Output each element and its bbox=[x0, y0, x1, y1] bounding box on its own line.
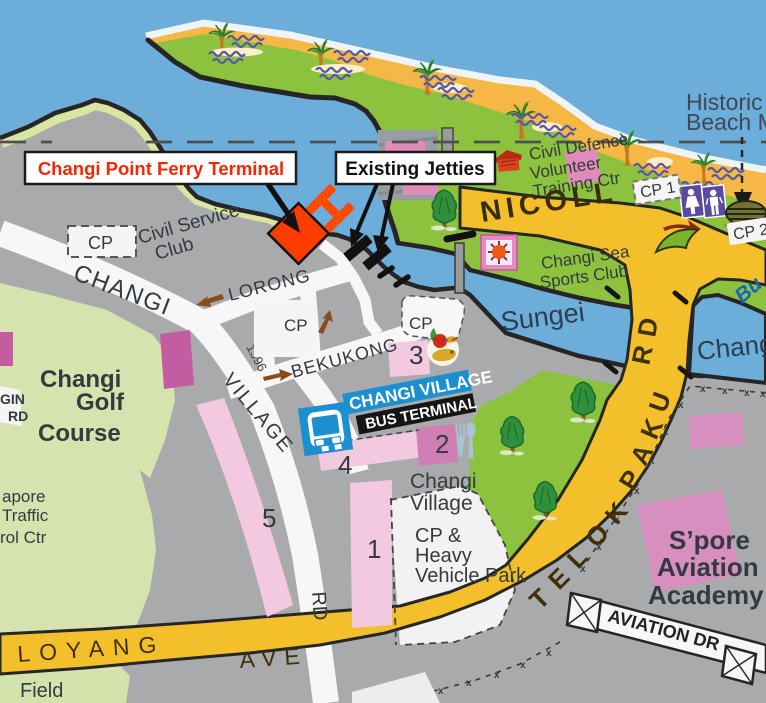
svg-text:CP: CP bbox=[409, 314, 433, 333]
svg-text:S’pore: S’pore bbox=[669, 525, 750, 555]
svg-text:Traffic: Traffic bbox=[2, 506, 49, 525]
svg-text:AVE: AVE bbox=[239, 642, 309, 673]
svg-text:4: 4 bbox=[338, 450, 352, 480]
svg-text:apore: apore bbox=[2, 487, 45, 506]
svg-text:x: x bbox=[546, 648, 552, 659]
svg-text:2: 2 bbox=[435, 429, 449, 459]
svg-text:Vehicle Park: Vehicle Park bbox=[415, 565, 527, 587]
svg-text:Changi: Changi bbox=[410, 470, 477, 493]
svg-text:1: 1 bbox=[367, 534, 381, 564]
svg-text:Course: Course bbox=[38, 420, 121, 447]
svg-text:CP &: CP & bbox=[415, 525, 462, 547]
svg-text:Field: Field bbox=[20, 680, 63, 702]
svg-text:Existing Jetties: Existing Jetties bbox=[345, 159, 484, 180]
svg-text:CP: CP bbox=[88, 233, 113, 253]
svg-text:x: x bbox=[494, 670, 500, 681]
svg-text:Golf: Golf bbox=[76, 389, 125, 416]
svg-text:x: x bbox=[678, 400, 684, 411]
svg-text:x: x bbox=[722, 386, 728, 397]
svg-text:x: x bbox=[520, 660, 526, 671]
svg-text:RD: RD bbox=[8, 408, 28, 424]
svg-text:rol Ctr: rol Ctr bbox=[0, 528, 47, 547]
svg-text:5: 5 bbox=[262, 503, 276, 533]
svg-text:Academy: Academy bbox=[648, 580, 764, 610]
svg-text:x: x bbox=[438, 686, 444, 697]
svg-text:x: x bbox=[744, 388, 750, 399]
svg-text:Village: Village bbox=[410, 492, 473, 515]
svg-text:3: 3 bbox=[409, 340, 423, 370]
svg-text:CP: CP bbox=[284, 316, 308, 335]
svg-text:x: x bbox=[466, 678, 472, 689]
svg-text:Heavy: Heavy bbox=[415, 545, 472, 567]
svg-text:RD: RD bbox=[307, 591, 331, 621]
svg-text:x: x bbox=[760, 389, 766, 400]
svg-text:Aviation: Aviation bbox=[657, 552, 759, 582]
svg-text:Changi Point Ferry Terminal: Changi Point Ferry Terminal bbox=[38, 158, 284, 179]
svg-text:x: x bbox=[700, 384, 706, 395]
svg-text:GIN: GIN bbox=[0, 391, 25, 407]
svg-text:Beach M: Beach M bbox=[686, 109, 766, 135]
